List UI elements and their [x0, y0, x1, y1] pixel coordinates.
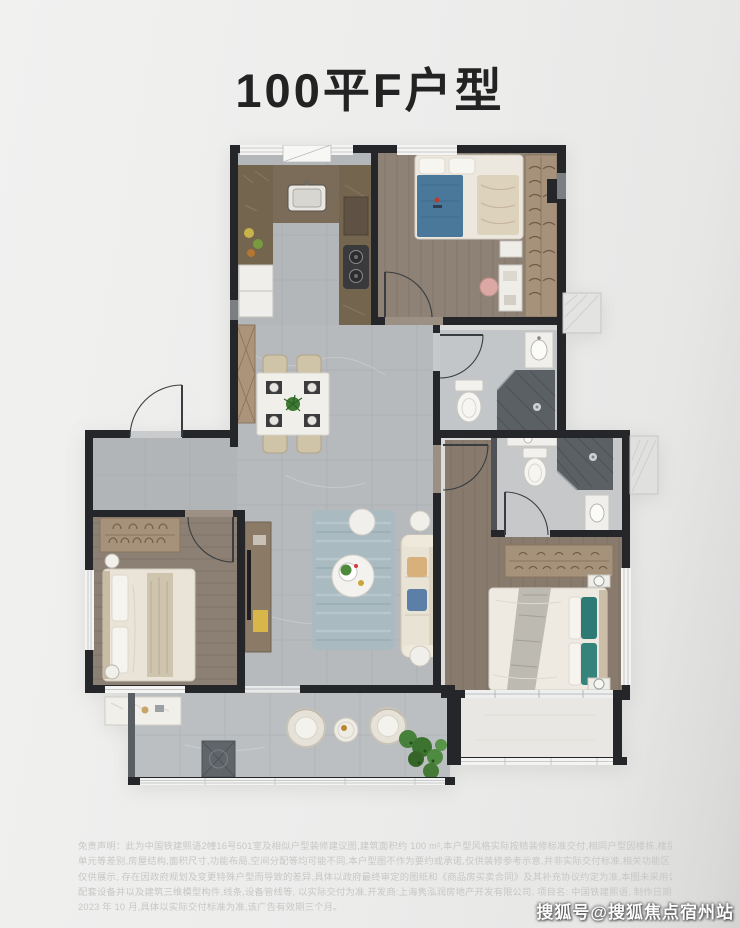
- disclaimer-line: 单元等差别,房屋结构,面积尺寸,功能布局,空间分配等均可能不同,本户型图不作为要…: [78, 854, 672, 869]
- fridge: [239, 265, 273, 317]
- pantry-cabinet: [237, 325, 255, 423]
- nightstand-guest: [500, 241, 522, 257]
- dining-chair: [297, 433, 321, 453]
- window-box: [283, 145, 331, 162]
- rattan-chair: [287, 709, 325, 747]
- dining-chair: [263, 355, 287, 375]
- toilet: [455, 380, 483, 422]
- tv-console: [245, 522, 271, 652]
- disclaimer-line: 免责声明：此为中国铁建熙语2幢16号501室及相似户型装修建议图,建筑面积约 1…: [78, 839, 672, 854]
- dining-chair: [263, 433, 287, 453]
- coffee-table: [332, 555, 374, 597]
- side-table: [410, 646, 430, 666]
- floor-plan-svg: [85, 145, 660, 805]
- round-pouf: [349, 509, 375, 535]
- bedroom-2: [378, 153, 557, 317]
- floor-plan: [85, 145, 660, 805]
- balcony-console: [105, 697, 181, 725]
- floorplan-title: 100平F户型: [0, 52, 740, 121]
- bedroom-1: [93, 517, 237, 687]
- bed-bedroom1: [103, 569, 195, 681]
- fruit-bowl: [244, 228, 254, 238]
- kitchen-sink: [288, 181, 326, 211]
- shower: [497, 370, 555, 435]
- article-image-page: 100平F户型: [0, 0, 740, 928]
- sohu-watermark: 搜狐号@搜狐焦点宿州站: [536, 898, 734, 923]
- master-suite: [445, 433, 622, 697]
- dining-chair: [297, 355, 321, 375]
- wardrobe-bedroom1: [100, 518, 180, 552]
- floor-drain: [202, 741, 235, 777]
- vanity: [525, 332, 553, 368]
- wall-oven: [344, 197, 368, 235]
- disclaimer-line: 仅供展示, 存在因政府规划及变更特殊户型而导致的差异,具体以政府最终审定的图纸和…: [78, 870, 672, 885]
- cooktop: [343, 245, 369, 289]
- nightstand-bedroom1: [105, 665, 119, 679]
- balcony-table: [334, 718, 358, 742]
- bed-master: [489, 588, 607, 690]
- wardrobe-master: [505, 545, 613, 577]
- nightstand-bedroom1: [105, 554, 119, 568]
- bed-guest: [415, 155, 523, 239]
- side-table: [410, 511, 430, 531]
